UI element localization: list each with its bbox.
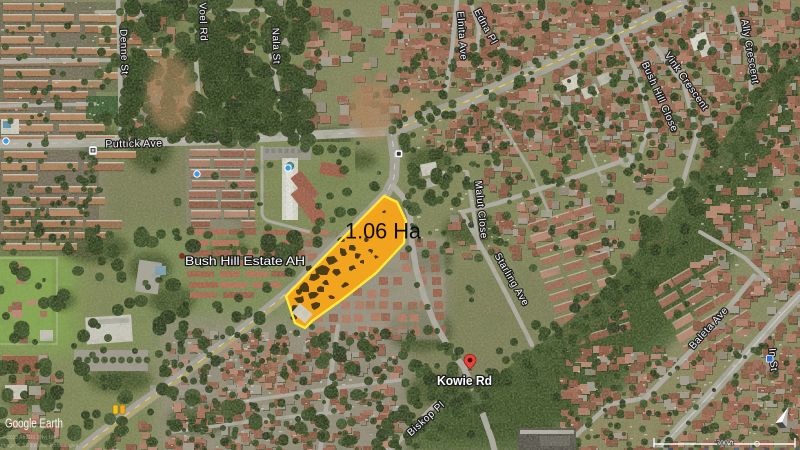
svg-text:Voel Rd: Voel Rd xyxy=(196,2,208,41)
svg-text:Denne St: Denne St xyxy=(117,29,130,75)
svg-text:Nala St: Nala St xyxy=(269,28,281,65)
svg-text:© 2023 AfriGIS (Pty) Ltd: © 2023 AfriGIS (Pty) Ltd xyxy=(2,434,56,441)
svg-text:1.06 Ha: 1.06 Ha xyxy=(345,219,421,244)
svg-text:Google Earth: Google Earth xyxy=(5,416,63,431)
svg-text:Puttick Ave: Puttick Ave xyxy=(105,138,162,151)
svg-text:Kowie Rd: Kowie Rd xyxy=(437,374,492,388)
svg-text:Image © 2023 Maxar Technologie: Image © 2023 Maxar Technologies xyxy=(1,442,79,449)
svg-text:700 ft: 700 ft xyxy=(716,441,734,448)
svg-text:Bush Hill Estate AH: Bush Hill Estate AH xyxy=(185,254,305,268)
